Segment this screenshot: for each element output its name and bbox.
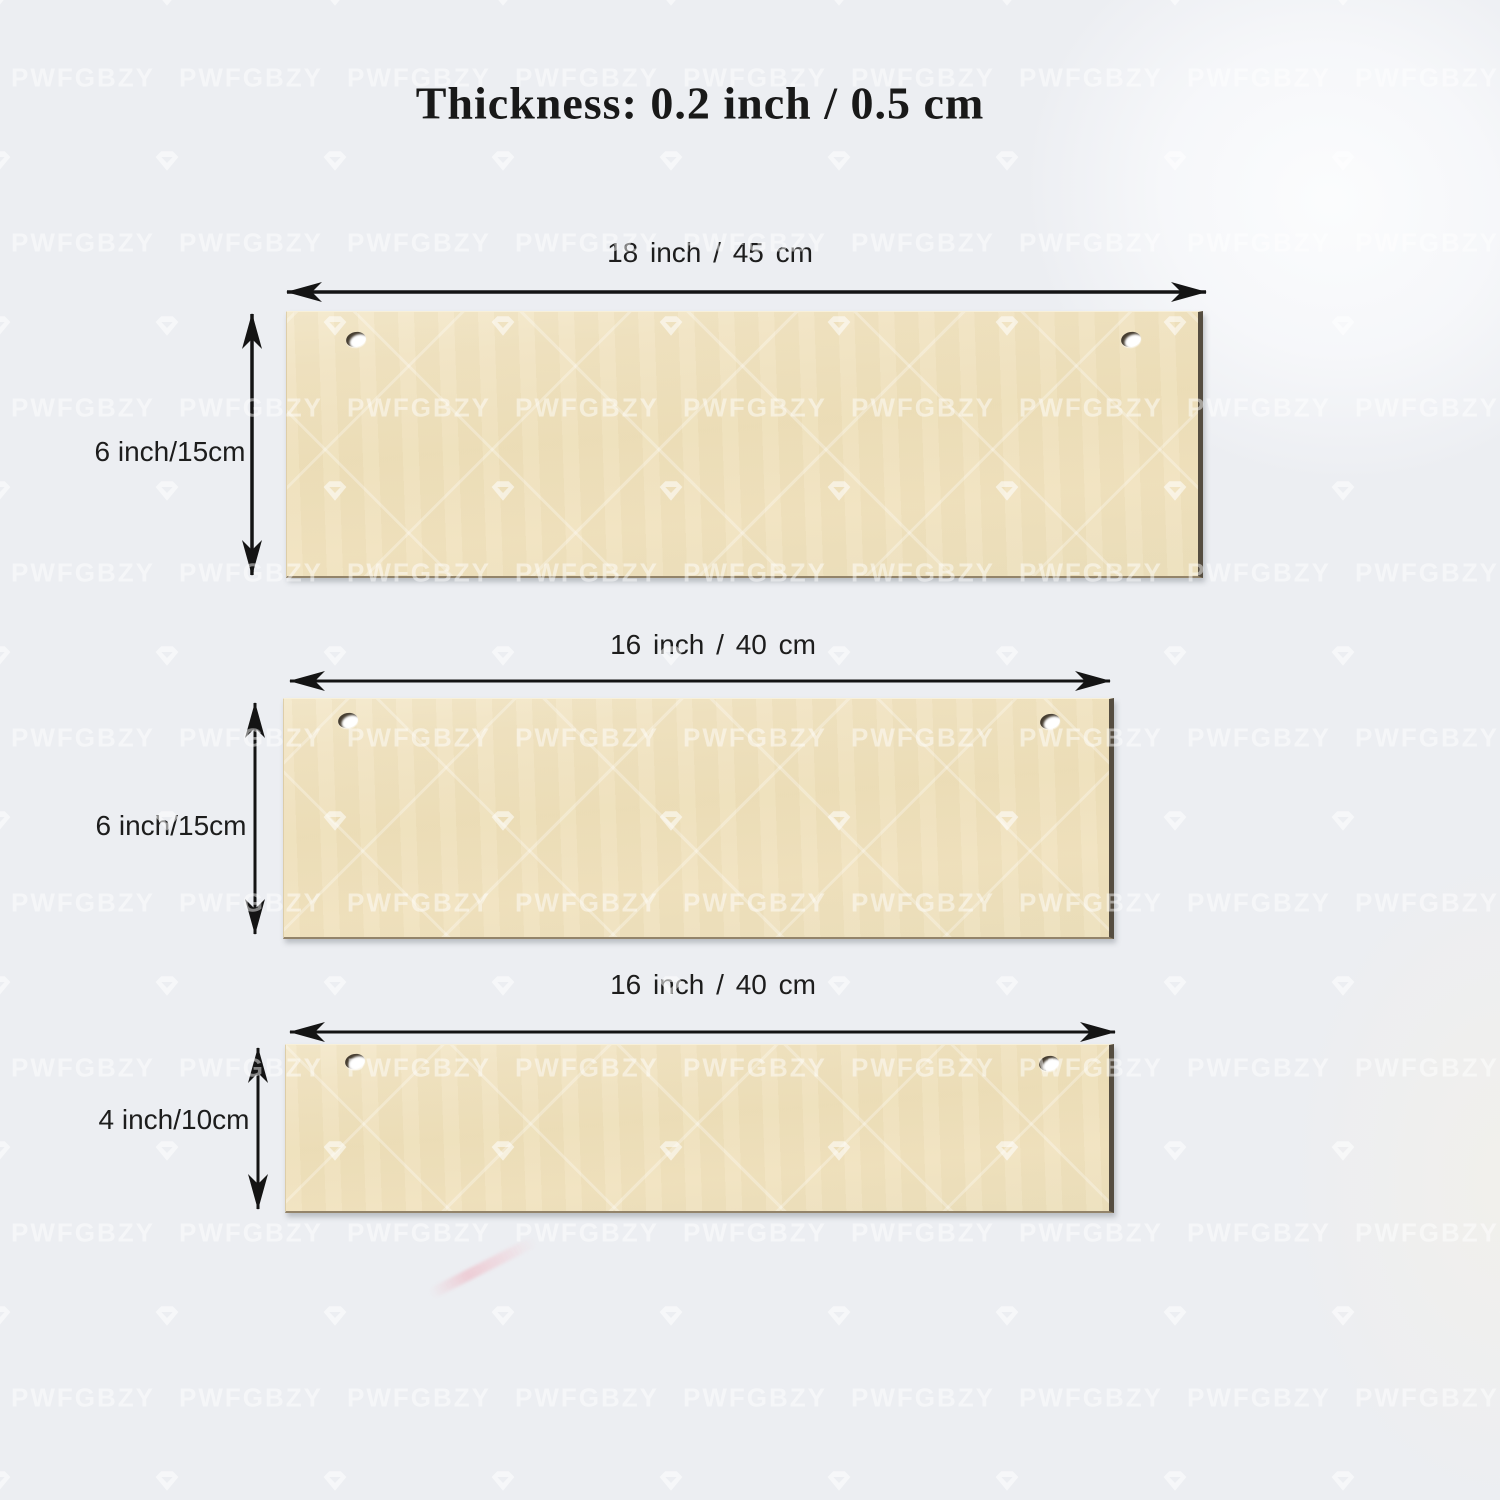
width-label-plank1: 18 inch / 45 cm bbox=[607, 237, 813, 269]
height-label-plank2: 6 inch/15cm bbox=[96, 810, 247, 842]
dimension-labels: 18 inch / 45 cm 6 inch/15cm 16 inch / 40… bbox=[0, 0, 1500, 1500]
product-dimension-diagram: Thickness: 0.2 inch / 0.5 cm bbox=[0, 0, 1500, 1500]
height-label-plank1: 6 inch/15cm bbox=[95, 436, 246, 468]
height-label-plank3: 4 inch/10cm bbox=[99, 1104, 250, 1136]
width-label-plank2: 16 inch / 40 cm bbox=[610, 629, 816, 661]
width-label-plank3: 16 inch / 40 cm bbox=[610, 969, 816, 1001]
